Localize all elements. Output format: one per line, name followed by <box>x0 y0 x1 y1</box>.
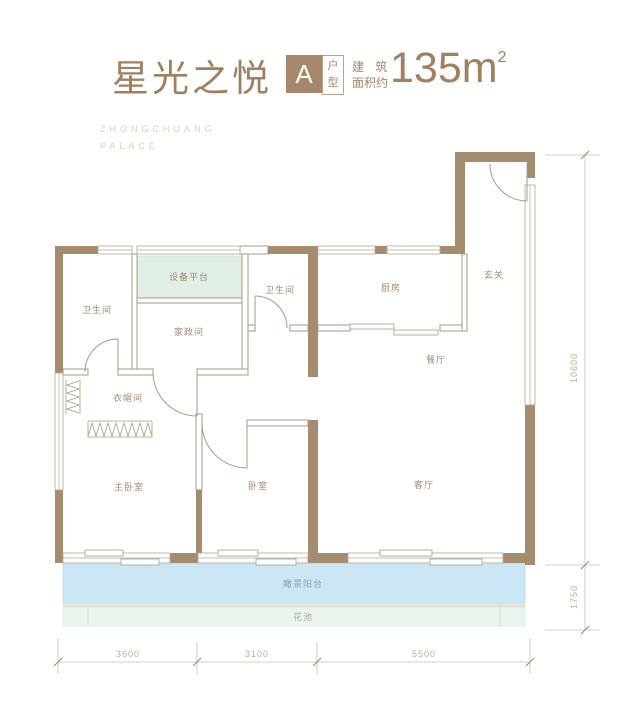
wardrobe-hatch-horizontal <box>88 421 152 437</box>
dim-bottom-middle: 3100 <box>245 649 269 659</box>
wardrobe-symbols <box>66 380 152 437</box>
room-label-bedroom: 卧室 <box>248 480 268 491</box>
room-label-dining: 餐厅 <box>426 354 446 365</box>
bathroom1-door <box>85 339 118 372</box>
structural-walls <box>55 152 535 565</box>
room-label-housekeeping: 家政间 <box>174 326 204 337</box>
room-label-kitchen: 厨房 <box>381 282 401 293</box>
entrance-door <box>490 164 527 201</box>
room-label-living: 客厅 <box>414 479 434 490</box>
thin-walls <box>63 246 467 490</box>
dim-right-balcony: 1750 <box>569 585 579 609</box>
room-label-balcony: 瞰景阳台 <box>283 578 323 589</box>
dim-bottom-left: 3600 <box>116 649 140 659</box>
wardrobe-hatch-vertical <box>66 380 80 414</box>
bedroom-door <box>202 423 247 468</box>
room-label-bathroom2: 卫生间 <box>265 284 295 295</box>
sliding-door-panels <box>85 324 482 565</box>
floorplan-page: 星光之悦 A 户型 建 筑 面积约 135m2 ZHONGCHUANG PALA… <box>0 0 631 721</box>
bathroom2-door <box>255 296 287 328</box>
dim-bottom-right: 5500 <box>412 649 436 659</box>
balcony-edge-strip <box>63 603 525 607</box>
room-label-closet: 衣帽间 <box>113 392 143 403</box>
room-label-entry: 玄关 <box>484 269 504 280</box>
room-label-bathroom1: 卫生间 <box>82 304 112 315</box>
floorplan-drawing: 卫生间 设备平台 家政间 卫生间 厨房 玄关 餐厅 客厅 衣帽间 主卧室 卧室 … <box>0 0 631 721</box>
dim-right-height: 10600 <box>569 353 579 383</box>
closet-door <box>153 372 197 416</box>
room-label-flower-bed: 花池 <box>293 611 313 622</box>
room-label-master-bedroom: 主卧室 <box>114 481 144 492</box>
room-label-equipment-platform: 设备平台 <box>169 271 209 282</box>
